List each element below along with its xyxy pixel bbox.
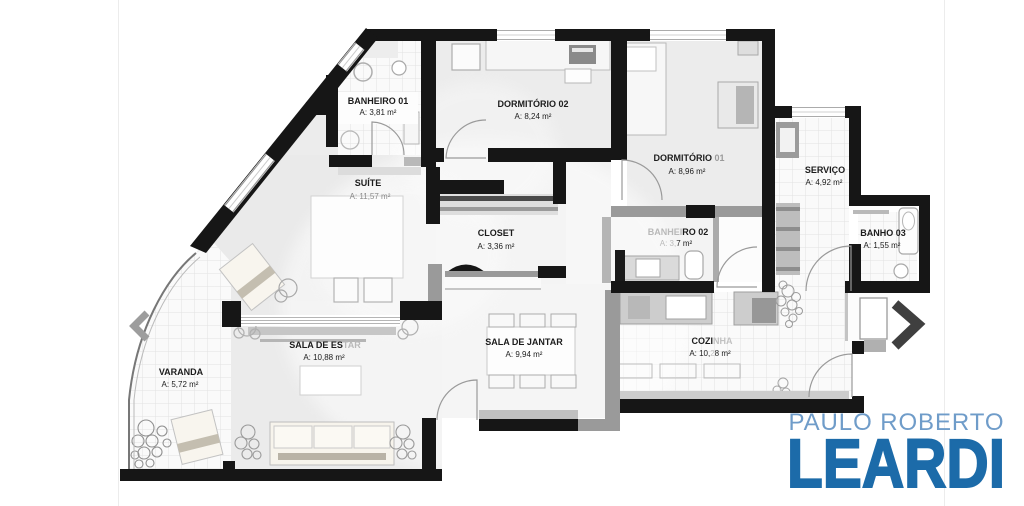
- svg-text:COZINHA: COZINHA: [692, 336, 733, 346]
- svg-text:SUÍTE: SUÍTE: [355, 178, 382, 188]
- svg-text:BANHEIRO 02: BANHEIRO 02: [648, 227, 709, 237]
- svg-text:SERVIÇO: SERVIÇO: [805, 165, 845, 175]
- svg-text:LEARDI: LEARDI: [787, 425, 1005, 502]
- svg-text:BANHO 03: BANHO 03: [860, 228, 906, 238]
- svg-text:BANHEIRO 01: BANHEIRO 01: [348, 96, 409, 106]
- svg-text:A: 9,94 m²: A: 9,94 m²: [506, 350, 543, 359]
- svg-text:A: 11,57 m²: A: 11,57 m²: [350, 192, 391, 201]
- svg-text:A: 8,96 m²: A: 8,96 m²: [669, 167, 706, 176]
- svg-text:SALA DE JANTAR: SALA DE JANTAR: [485, 337, 563, 347]
- svg-text:A: 1,55 m²: A: 1,55 m²: [864, 241, 901, 250]
- svg-text:A: 4,92 m²: A: 4,92 m²: [806, 178, 843, 187]
- svg-text:DORMITÓRIO 01: DORMITÓRIO 01: [653, 152, 724, 163]
- svg-text:A: 5,72 m²: A: 5,72 m²: [162, 380, 199, 389]
- svg-text:CLOSET: CLOSET: [478, 228, 515, 238]
- svg-text:DORMITÓRIO 02: DORMITÓRIO 02: [497, 98, 568, 109]
- svg-text:A: 3,7 m²: A: 3,7 m²: [660, 239, 693, 248]
- svg-text:A: 10,88 m²: A: 10,88 m²: [303, 353, 345, 362]
- svg-text:A: 10,28 m²: A: 10,28 m²: [689, 349, 731, 358]
- svg-text:A: 8,24 m²: A: 8,24 m²: [515, 112, 552, 121]
- svg-text:A: 3,81 m²: A: 3,81 m²: [360, 108, 397, 117]
- svg-text:A: 3,36 m²: A: 3,36 m²: [478, 242, 515, 251]
- svg-text:VARANDA: VARANDA: [159, 367, 204, 377]
- svg-text:SALA DE ESTAR: SALA DE ESTAR: [289, 340, 361, 350]
